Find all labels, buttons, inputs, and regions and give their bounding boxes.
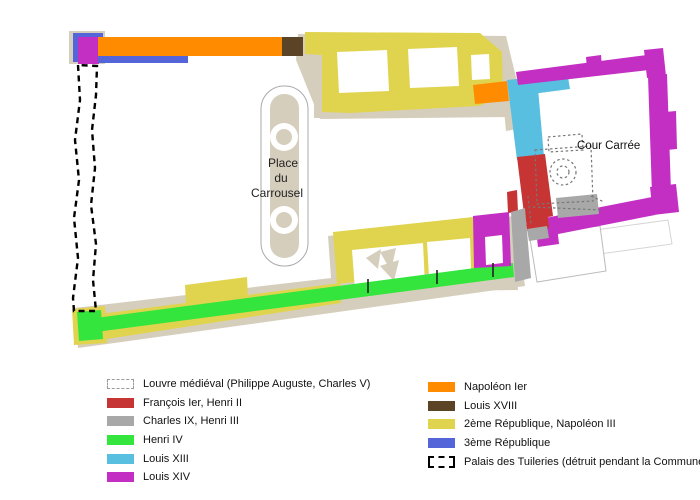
- legend-item-francois: François Ier, Henri II: [107, 394, 370, 413]
- legend-label: Louvre médiéval (Philippe Auguste, Charl…: [143, 378, 370, 390]
- medieval-swatch: [107, 379, 134, 389]
- charles-swatch: [107, 416, 134, 426]
- legend-item-medieval: Louvre médiéval (Philippe Auguste, Charl…: [107, 375, 370, 394]
- marsan-wing-rep3: [98, 56, 188, 63]
- legend-item-louis18: Louis XVIII: [428, 397, 700, 416]
- carrousel-label-line1: Place: [268, 156, 298, 170]
- legend-item-louis14: Louis XIV: [107, 468, 370, 487]
- napoleon1-link-block: [473, 81, 509, 104]
- legend-item-tuileries: Palais des Tuileries (détruit pendant la…: [428, 452, 700, 471]
- rep3-swatch: [428, 438, 455, 448]
- carrousel-dot-north: [276, 129, 292, 145]
- legend-label: François Ier, Henri II: [143, 397, 242, 409]
- north-courtyard-3: [471, 54, 490, 80]
- palais-des-tuileries-outline: [73, 65, 97, 311]
- rivoli-wing-napoleon1: [98, 37, 282, 56]
- louvre-construction-map: Place du Carrousel Cour Carrée Louvre mé…: [0, 0, 700, 500]
- cour-north-pavilion-louis14: [586, 55, 602, 69]
- legend-item-charles: Charles IX, Henri III: [107, 412, 370, 431]
- north-courtyard-1: [337, 50, 389, 93]
- tuileries-swatch: [428, 456, 455, 468]
- petite-galerie-charles-gray: [556, 194, 599, 218]
- legend-item-rep3: 3ème République: [428, 434, 700, 453]
- francois-south-pavilion: [524, 198, 549, 231]
- tuileries-pavilion-louis14: [78, 37, 99, 64]
- legend-label: Louis XVIII: [464, 400, 517, 412]
- pavillon-louis18: [282, 37, 303, 56]
- legend-item-louis13: Louis XIII: [107, 449, 370, 468]
- legend-label: Napoléon Ier: [464, 381, 527, 393]
- francois-west-pavilion: [507, 190, 518, 213]
- legend-label: Henri IV: [143, 434, 183, 446]
- north-courtyard-2: [408, 47, 459, 88]
- louis14-swatch: [107, 472, 134, 482]
- pavillon-flore-henri4: [77, 310, 103, 341]
- louis13-swatch: [107, 454, 134, 464]
- louis18-swatch: [428, 401, 455, 411]
- rep2-swatch: [428, 419, 455, 429]
- cour-ne-pavilion-louis14: [644, 48, 666, 78]
- legend-label: Palais des Tuileries (détruit pendant la…: [464, 456, 700, 468]
- carrousel-dot-south: [276, 212, 292, 228]
- grande-galerie-henri4: [88, 263, 514, 333]
- henri4-swatch: [107, 435, 134, 445]
- francois-swatch: [107, 398, 134, 408]
- legend-label: Louis XIV: [143, 471, 190, 483]
- petite-galerie-courtyard: [485, 235, 503, 265]
- legend-item-henri4: Henri IV: [107, 431, 370, 450]
- carrousel-label-line3: Carrousel: [251, 186, 303, 200]
- legend-label: Louis XIII: [143, 453, 189, 465]
- cour-se-pavilion-louis14: [650, 184, 679, 215]
- legend-label: 2ème République, Napoléon III: [464, 418, 616, 430]
- napoleon1-swatch: [428, 382, 455, 392]
- legend-item-rep2: 2ème République, Napoléon III: [428, 415, 700, 434]
- legend-label: 3ème République: [464, 437, 550, 449]
- cour-north-wing-louis14: [516, 55, 649, 85]
- carrousel-label-line2: du: [274, 171, 287, 185]
- legend-label: Charles IX, Henri III: [143, 415, 239, 427]
- legend-item-napoleon1: Napoléon Ier: [428, 378, 700, 397]
- cour-carree-label: Cour Carrée: [577, 140, 640, 152]
- legend-right-column: Napoléon Ier Louis XVIII 2ème République…: [428, 378, 700, 471]
- cour-east-pavilion-louis14: [665, 111, 677, 150]
- legend-left-column: Louvre médiéval (Philippe Auguste, Charl…: [107, 375, 370, 487]
